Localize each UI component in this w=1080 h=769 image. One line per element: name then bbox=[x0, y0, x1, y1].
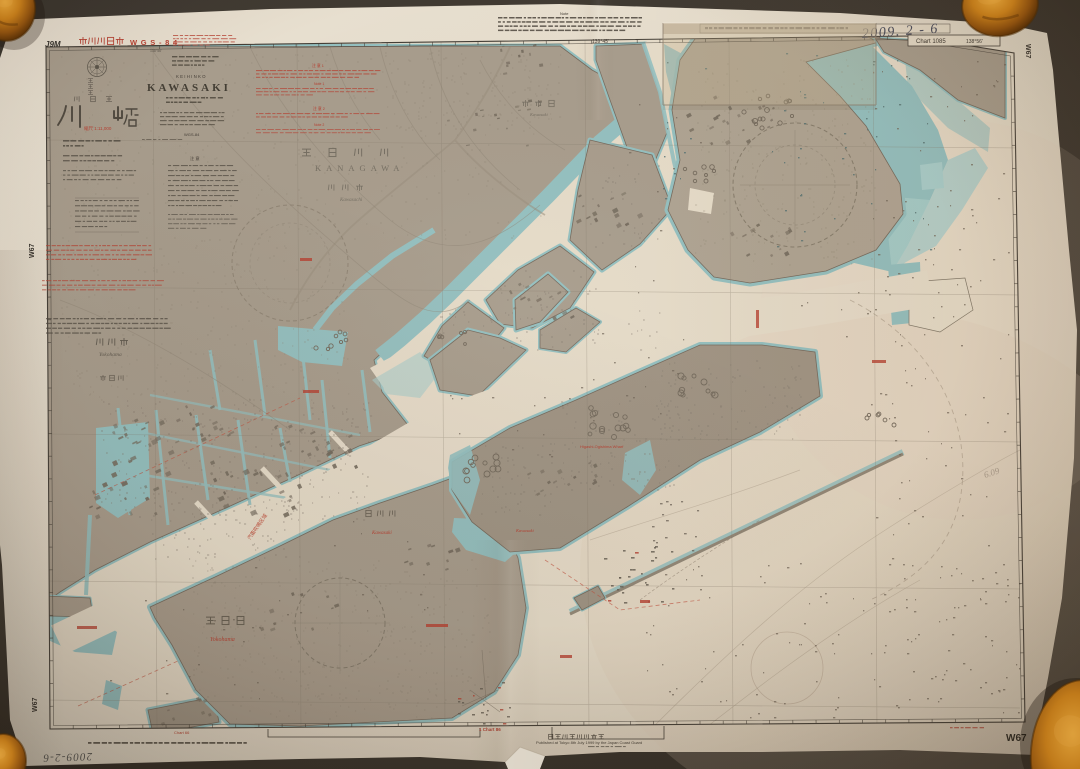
svg-text:2009-2-6: 2009-2-6 bbox=[42, 750, 92, 764]
